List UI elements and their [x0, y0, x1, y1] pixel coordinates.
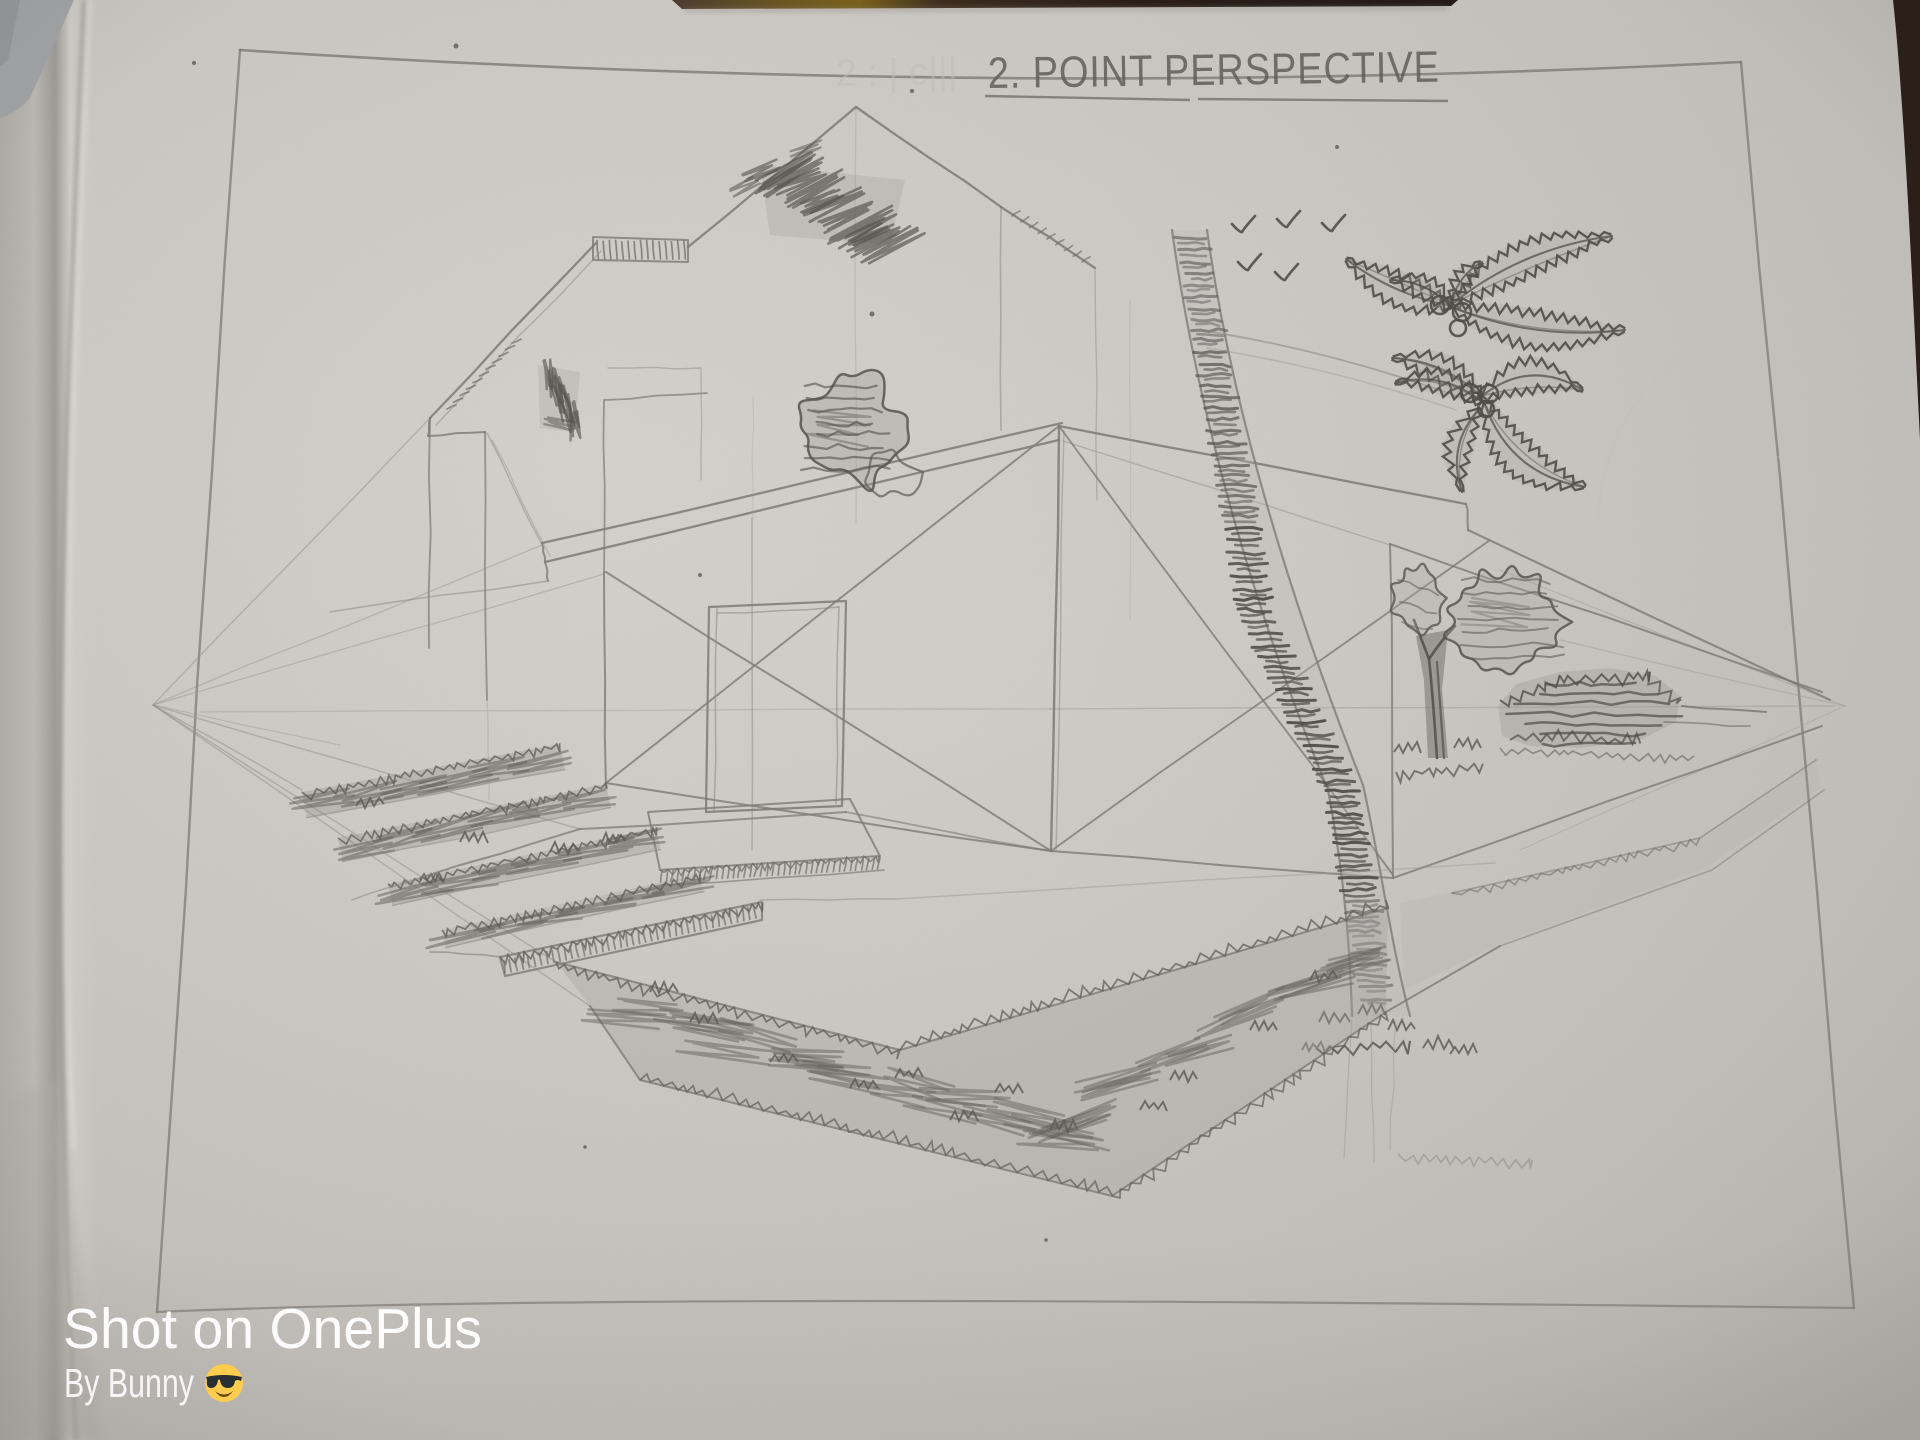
svg-text:Shot on OnePlus: Shot on OnePlus: [63, 1297, 482, 1361]
svg-text:2 : | c|||: 2 : | c|||: [835, 51, 958, 95]
svg-text:By Bunny: By Bunny: [64, 1360, 194, 1406]
svg-text:2. POINT PERSPECTIVE: 2. POINT PERSPECTIVE: [987, 43, 1440, 98]
